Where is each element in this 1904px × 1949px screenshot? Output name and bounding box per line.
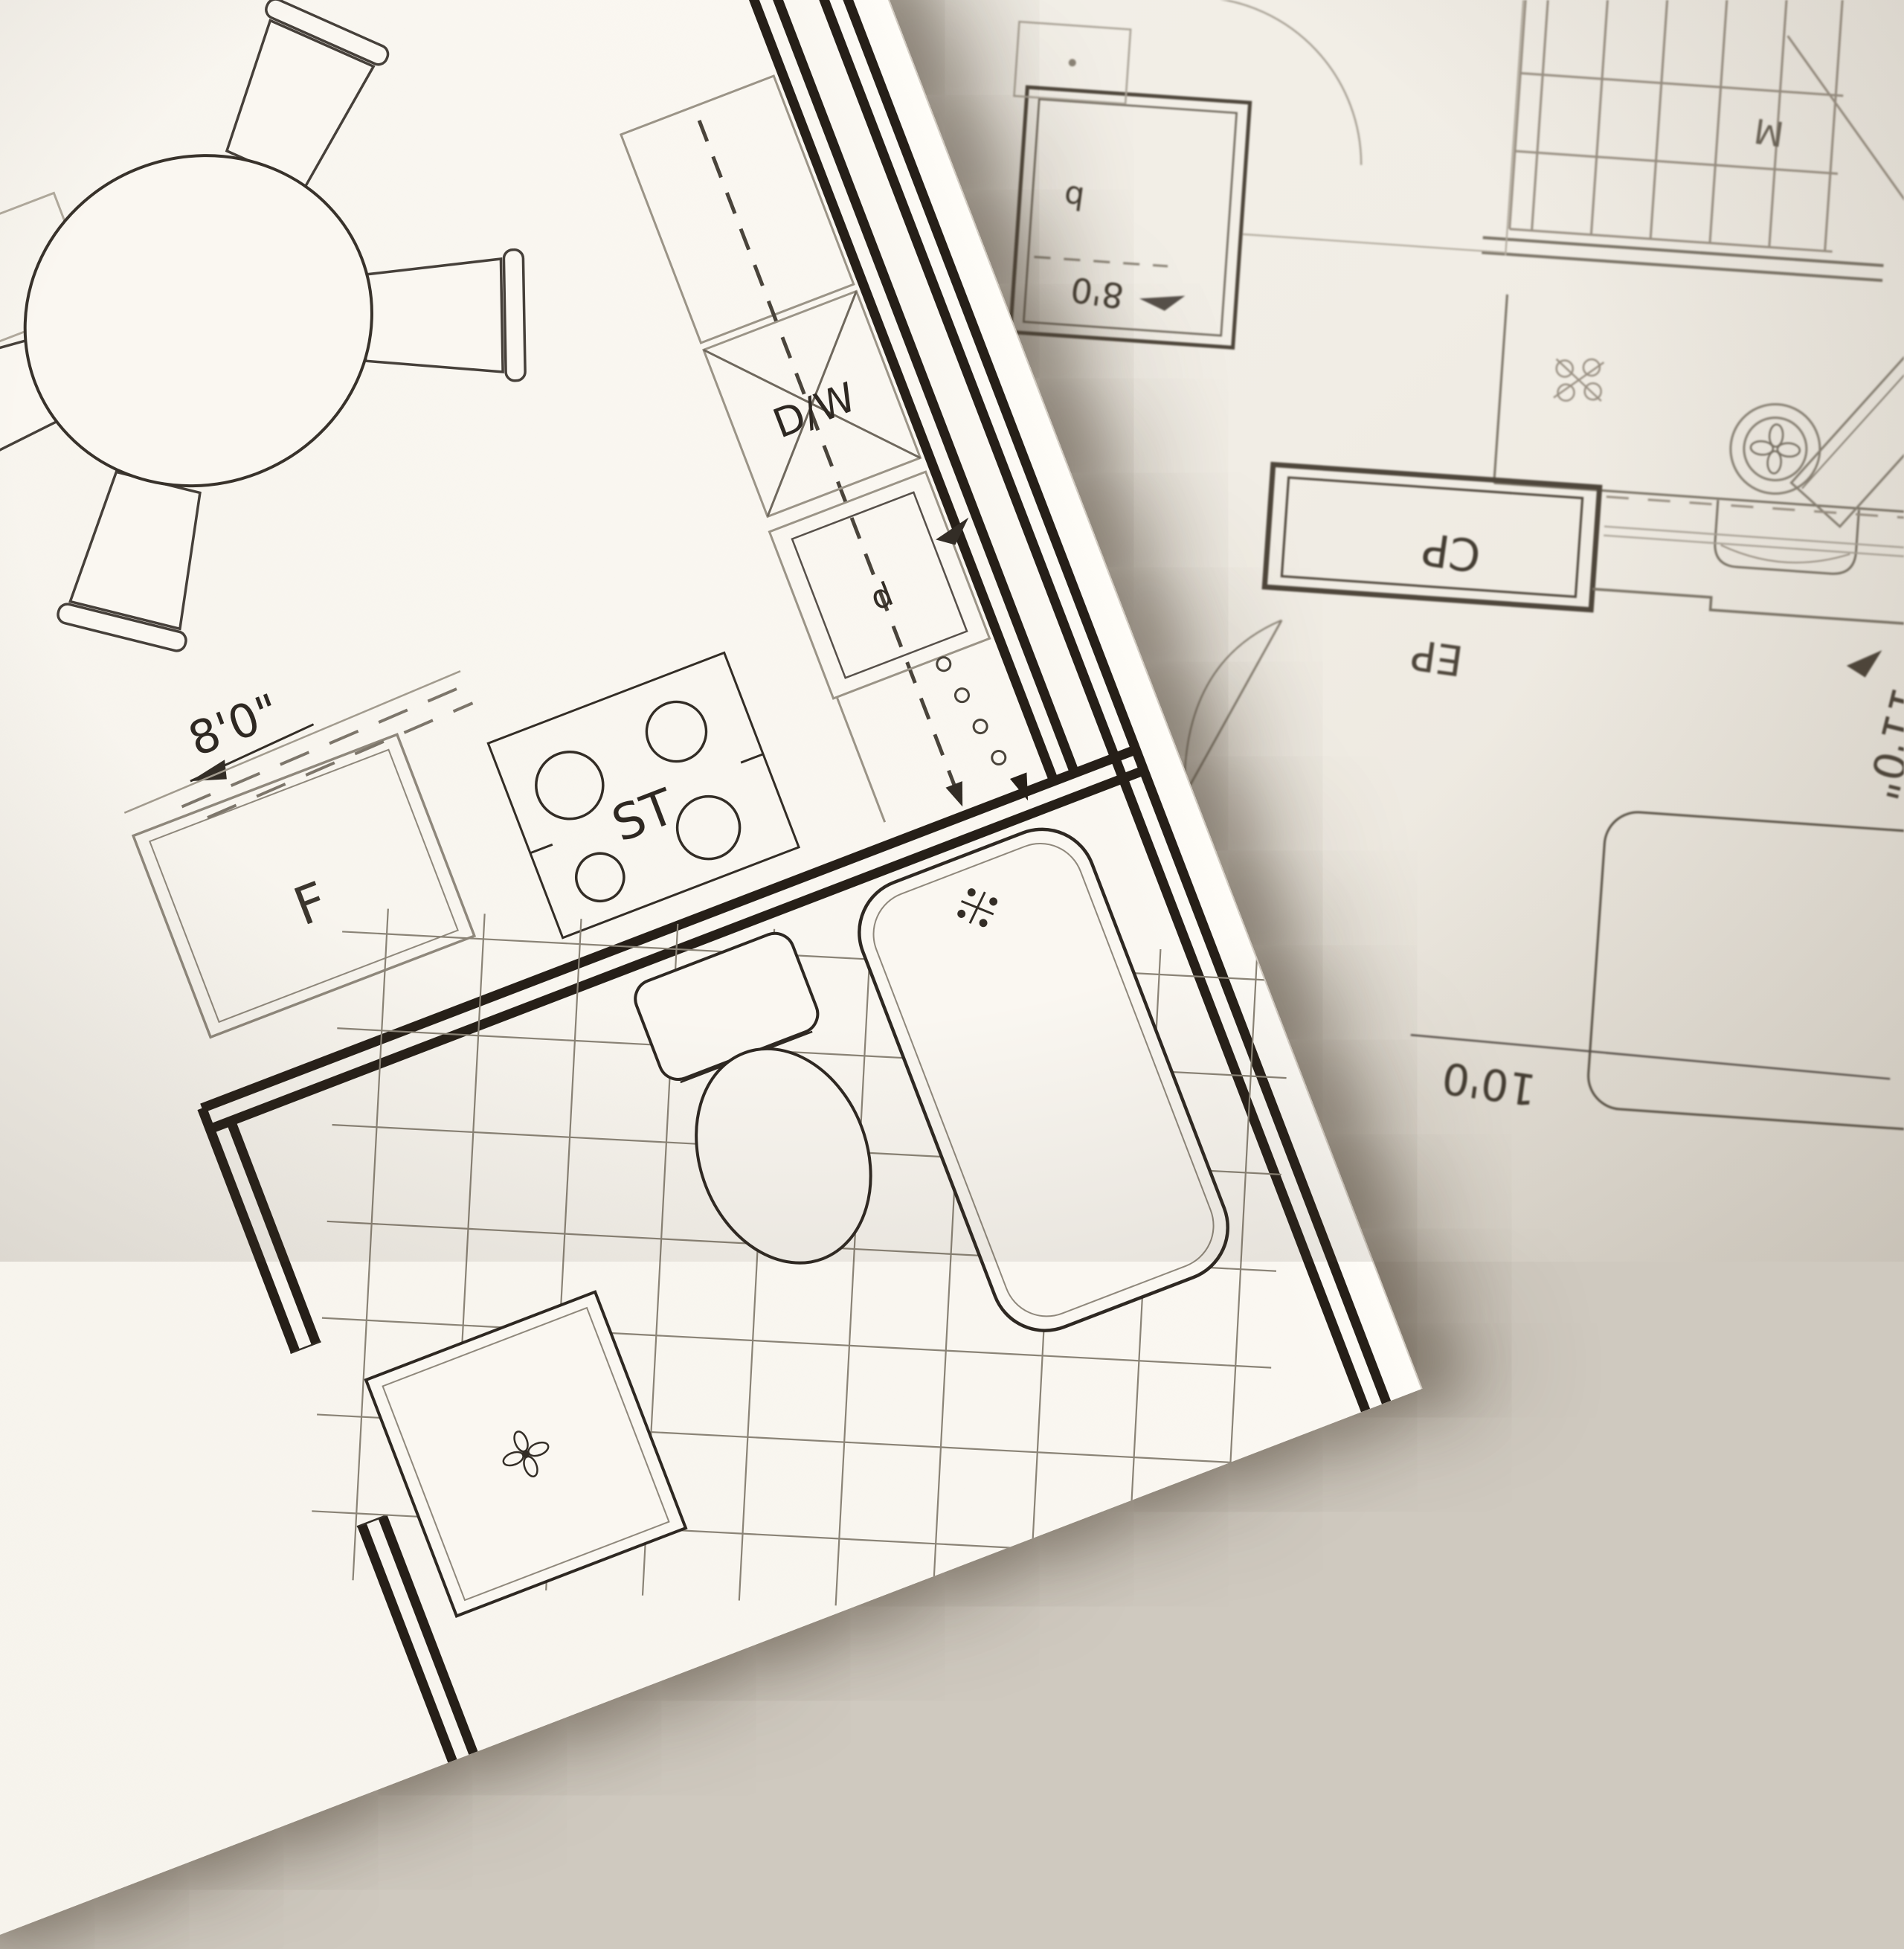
window-grid <box>1510 0 1904 260</box>
dishwasher: D/W <box>704 291 920 516</box>
duct-arrowhead <box>945 781 971 809</box>
svg-text:8'0": 8'0" <box>181 683 287 767</box>
burner <box>638 693 715 770</box>
corner-counter <box>837 649 1011 823</box>
toilet <box>630 928 901 1288</box>
rug-outline <box>1586 810 1904 1135</box>
bathtub <box>843 814 1243 1346</box>
bench <box>1791 351 1904 527</box>
bath-door-jambs <box>290 1341 387 1526</box>
dresser-counter <box>1494 295 1904 513</box>
dining-chair <box>56 466 222 652</box>
burner <box>569 847 631 908</box>
dim-8ft-right: 8'0 <box>1068 269 1186 321</box>
fan-symbol <box>1554 357 1604 403</box>
bath-door-arc <box>1194 0 1372 165</box>
dining-chair <box>364 249 525 383</box>
vanity-drain-dot <box>1068 59 1076 67</box>
wall-jog <box>1592 589 1904 625</box>
small-bath: b 8'0 <box>997 0 1524 366</box>
burner <box>527 742 613 829</box>
closet-cp: CP <box>1264 464 1599 609</box>
room-label-m: M <box>1752 110 1786 154</box>
sink-label: d <box>866 575 898 618</box>
dim-8ft-left: 8'0" <box>100 617 477 844</box>
headboard-bump <box>1714 500 1859 575</box>
svg-text:11'0": 11'0" <box>1856 682 1904 805</box>
stove-label: ST <box>605 778 683 854</box>
entry-door-swing <box>1183 614 1281 801</box>
fridge: F <box>133 734 475 1037</box>
fridge-label: F <box>286 870 335 938</box>
dim-10ft: 10'0 <box>1406 1035 1891 1140</box>
dishwasher-label: D/W <box>767 373 862 447</box>
window-sill <box>1482 237 1883 280</box>
closet-label: CP <box>1419 521 1484 581</box>
dining-set <box>0 0 614 722</box>
upper-wall-lines <box>1592 496 1904 625</box>
bath-label: b <box>1062 178 1087 216</box>
svg-text:10'0: 10'0 <box>1439 1052 1540 1115</box>
dining-table <box>0 106 420 536</box>
entry-label: EP <box>1408 629 1466 684</box>
dim-11ft: 11'0" <box>1837 648 1904 806</box>
blueprint-photo: { "left_sheet": { "labels": { "dim_8ft":… <box>0 0 1904 1262</box>
vanity <box>366 1292 686 1616</box>
svg-text:8'0: 8'0 <box>1068 269 1126 316</box>
